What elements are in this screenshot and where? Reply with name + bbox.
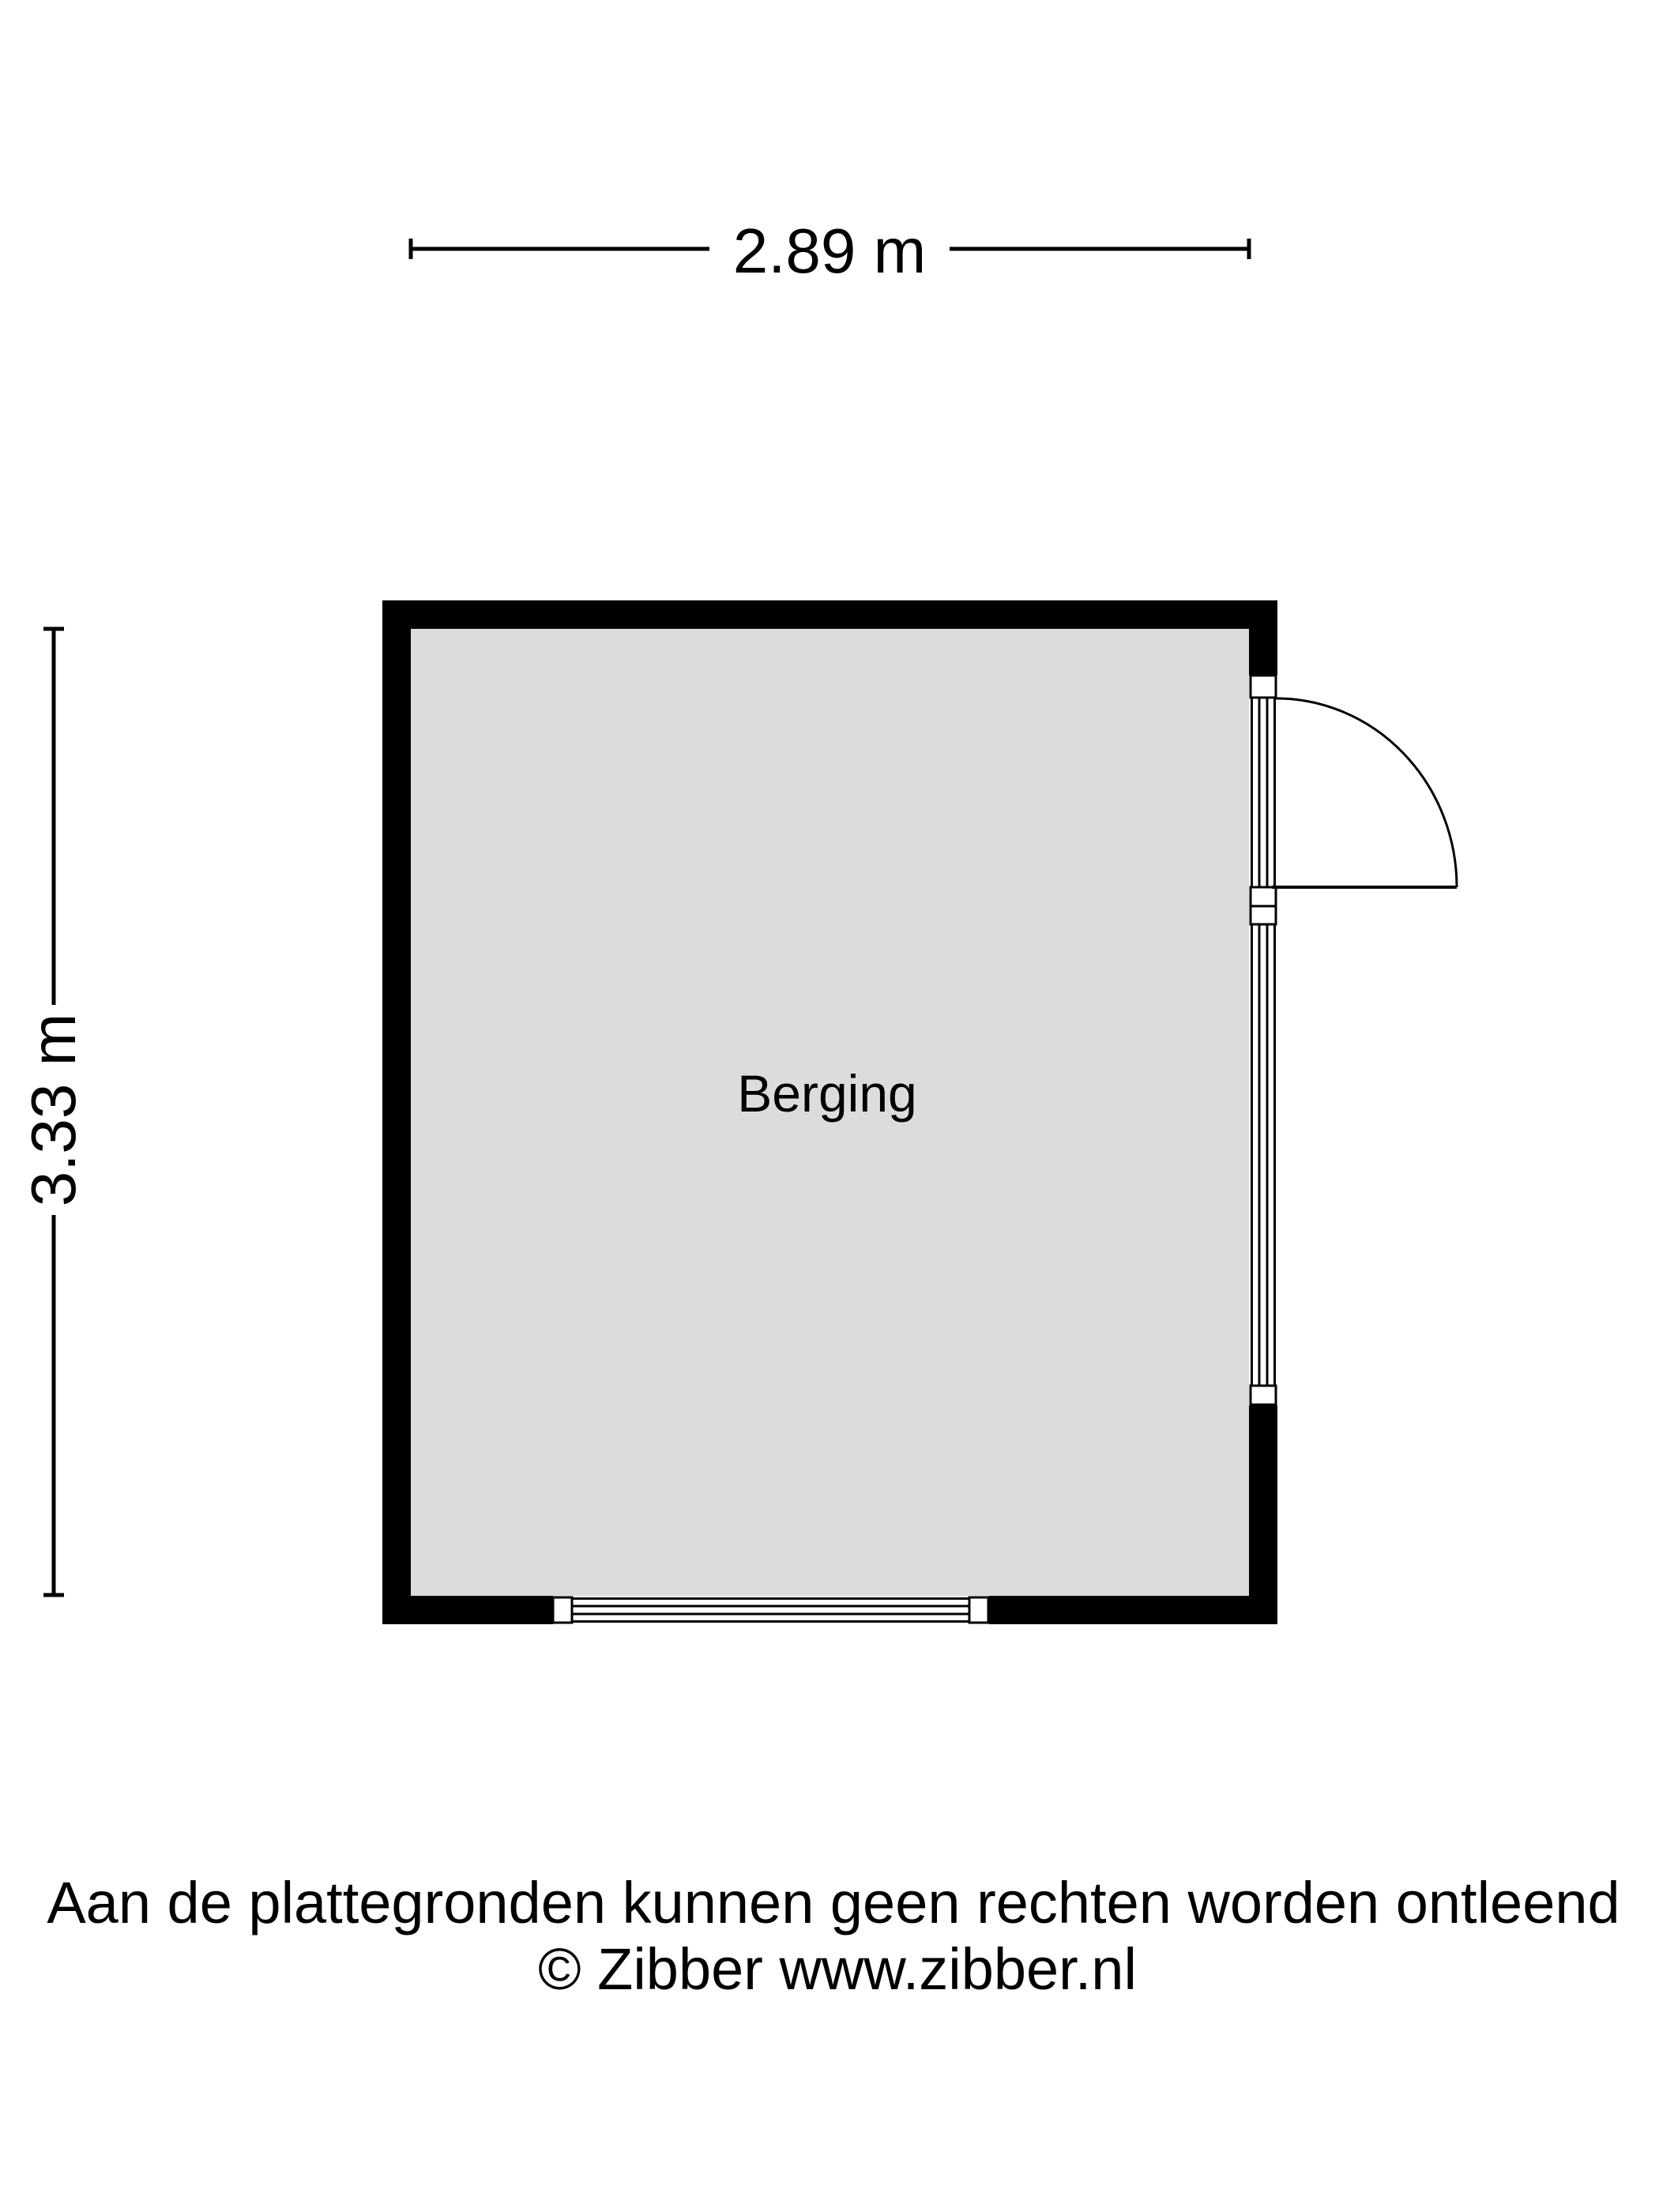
footer-copyright: © Zibber www.zibber.nl [538, 1936, 1137, 2002]
door-glazing [1252, 698, 1275, 887]
room-name-label: Berging [737, 1064, 917, 1123]
window-right-glazing [1252, 924, 1275, 1386]
door-frame-bottom [1251, 887, 1276, 906]
wall-bottom-left-segment [382, 1596, 553, 1624]
wall-right-top-segment [1249, 600, 1277, 675]
window-bottom-frame-right [969, 1597, 988, 1623]
door-frame-top [1251, 675, 1276, 698]
window-frame-top [1251, 906, 1276, 924]
width-dimension-label: 2.89 m [733, 216, 927, 286]
height-dimension-label: 3.33 m [18, 1014, 88, 1207]
window-bottom [553, 1597, 988, 1623]
footer-disclaimer: Aan de plattegronden kunnen geen rechten… [47, 1870, 1619, 1935]
window-right [1251, 924, 1276, 1405]
wall-top [382, 600, 1277, 629]
wall-bottom-right-segment [989, 1596, 1277, 1624]
window-bottom-glazing [572, 1599, 969, 1622]
wall-left [382, 600, 411, 1624]
window-bottom-frame-left [553, 1597, 572, 1623]
wall-right-bottom-segment [1249, 1405, 1277, 1624]
window-frame-bottom [1251, 1386, 1276, 1405]
floor-plan: 2.89 m 3.33 m [0, 0, 1659, 2212]
